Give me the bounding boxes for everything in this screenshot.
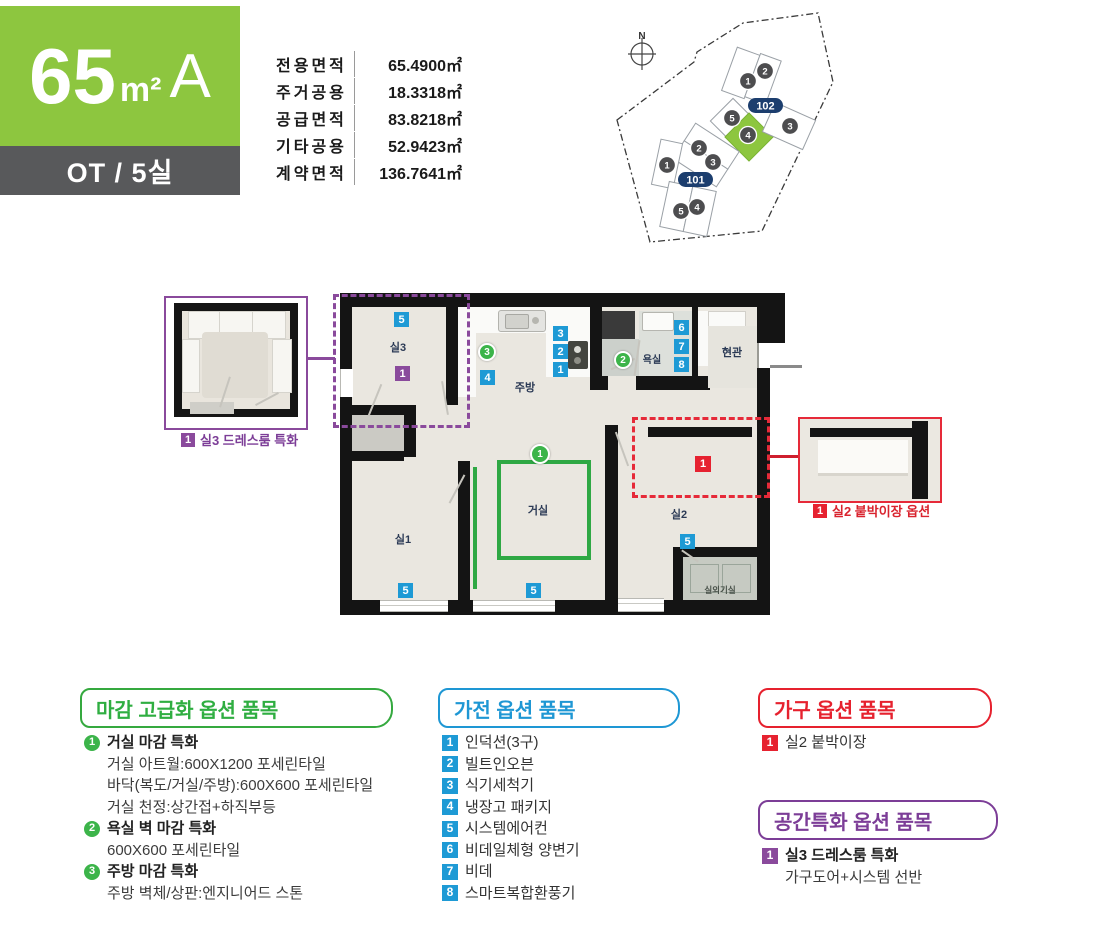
badge-bath-finish: 2 xyxy=(614,351,632,369)
item-name: 주방 마감 특화 xyxy=(107,861,198,883)
badge-room1-ac: 5 xyxy=(398,583,413,598)
item-number-badge: 3 xyxy=(442,778,458,794)
item-label: 스마트복합환풍기 xyxy=(465,883,575,905)
item-label: 시스템에어컨 xyxy=(465,818,548,840)
option-item: 1실3 드레스룸 특화 xyxy=(762,845,1012,867)
item-number-badge: 5 xyxy=(442,821,458,837)
furniture-options-title: 가구 옵션 품목 xyxy=(758,688,992,728)
area-table-row: 기타공용52.9423㎡ xyxy=(276,131,462,158)
badge-living-ac: 5 xyxy=(526,583,541,598)
ac-room-label: 실외기실 xyxy=(695,584,745,596)
unit-type-number: 65 xyxy=(29,37,116,115)
unit-plan-page: 65 m² A OT / 5실 전용면적65.4900㎡주거공용18.3318㎡… xyxy=(0,0,1098,948)
unit-type-box: 65 m² A xyxy=(0,6,240,146)
dressroom-zone-outline xyxy=(333,294,470,428)
kitchen-label: 주방 xyxy=(505,379,545,395)
item-label: 비데 xyxy=(465,861,493,883)
item-name: 거실 마감 특화 xyxy=(107,732,198,754)
area-table: 전용면적65.4900㎡주거공용18.3318㎡공급면적83.8218㎡기타공용… xyxy=(276,50,462,185)
sink-icon xyxy=(498,310,546,332)
option-item: 7비데 xyxy=(442,861,692,883)
area-table-row: 전용면적65.4900㎡ xyxy=(276,50,462,77)
item-label: 식기세척기 xyxy=(465,775,534,797)
dressroom-callout xyxy=(164,296,308,430)
area-table-row: 주거공용18.3318㎡ xyxy=(276,77,462,104)
bath-label: 욕실 xyxy=(635,351,669,366)
unit-subtitle: OT / 5실 xyxy=(0,146,240,195)
badge-bidet: 7 xyxy=(674,339,689,354)
option-item: 1인덕션(3구) xyxy=(442,732,692,754)
site-plan: N xyxy=(600,8,990,258)
living-label: 거실 xyxy=(518,502,558,518)
unit-marker: 5 xyxy=(678,207,684,218)
item-label: 빌트인오븐 xyxy=(465,754,534,776)
item-number-badge: 2 xyxy=(442,756,458,772)
area-value: 52.9423㎡ xyxy=(355,133,462,157)
unit-marker: 3 xyxy=(710,158,715,169)
option-item: 6비데일체형 양변기 xyxy=(442,840,692,862)
item-number-badge: 2 xyxy=(84,821,100,837)
entry-label: 현관 xyxy=(712,344,752,360)
dressroom-callout-caption: 1 실3 드레스룸 특화 xyxy=(181,430,298,449)
item-number-badge: 8 xyxy=(442,885,458,901)
badge-living-finish: 1 xyxy=(530,444,550,464)
unit-type-variant: A xyxy=(169,41,210,112)
item-number-badge: 1 xyxy=(84,735,100,751)
item-detail: 바닥(복도/거실/주방):600X600 포세린타일 xyxy=(107,775,414,797)
item-number-badge: 1 xyxy=(762,848,778,864)
option-item: 2빌트인오븐 xyxy=(442,754,692,776)
closet-caption-badge: 1 xyxy=(813,504,827,518)
option-item: 3식기세척기 xyxy=(442,775,692,797)
item-number-badge: 4 xyxy=(442,799,458,815)
item-number-badge: 6 xyxy=(442,842,458,858)
item-number-badge: 1 xyxy=(762,735,778,751)
option-item: 1실2 붙박이장 xyxy=(762,732,1012,754)
closet-zone-outline xyxy=(632,417,770,498)
item-label: 실2 붙박이장 xyxy=(785,732,867,754)
item-label: 비데일체형 양변기 xyxy=(465,840,580,862)
item-number-badge: 1 xyxy=(442,735,458,751)
cooktop-icon xyxy=(568,341,588,369)
area-label: 기타공용 xyxy=(276,133,354,157)
item-number-badge: 7 xyxy=(442,864,458,880)
item-detail: 600X600 포세린타일 xyxy=(107,840,414,862)
area-value: 18.3318㎡ xyxy=(355,79,462,103)
unit-marker: 2 xyxy=(762,67,767,78)
option-item: 1거실 마감 특화 xyxy=(84,732,414,754)
badge-vent: 8 xyxy=(674,357,689,372)
badge-fridge-package: 4 xyxy=(480,370,495,385)
item-detail: 거실 천정:상간접+하직부등 xyxy=(107,797,414,819)
finish-options-title: 마감 고급화 옵션 품목 xyxy=(80,688,393,728)
unit-marker: 5 xyxy=(729,114,735,125)
area-value: 65.4900㎡ xyxy=(355,52,462,76)
block-label-101: 101 xyxy=(686,175,704,187)
area-label: 전용면적 xyxy=(276,52,354,76)
room2-label: 실2 xyxy=(659,506,699,522)
dressroom-caption-text: 실3 드레스룸 특화 xyxy=(200,430,298,449)
badge-kitchen-finish: 3 xyxy=(478,343,496,361)
finish-options-list: 1거실 마감 특화거실 아트월:600X1200 포세린타일바닥(복도/거실/주… xyxy=(84,732,414,904)
badge-combo-toilet: 6 xyxy=(674,320,689,335)
badge-dishwasher: 3 xyxy=(553,326,568,341)
unit-marker-highlighted: 4 xyxy=(745,131,751,142)
area-value: 83.8218㎡ xyxy=(355,106,462,130)
block-label-102: 102 xyxy=(756,101,774,113)
furniture-options-list: 1실2 붙박이장 xyxy=(762,732,1012,754)
item-detail: 거실 아트월:600X1200 포세린타일 xyxy=(107,754,414,776)
compass-icon: N xyxy=(628,31,656,70)
item-name: 실3 드레스룸 특화 xyxy=(785,845,898,867)
appliance-options-list: 1인덕션(3구)2빌트인오븐3식기세척기4냉장고 패키지5시스템에어컨6비데일체… xyxy=(442,732,692,904)
dressroom-caption-badge: 1 xyxy=(181,433,195,447)
area-label: 계약면적 xyxy=(276,160,354,184)
unit-marker: 1 xyxy=(664,161,670,172)
badge-induction: 1 xyxy=(553,362,568,377)
closet-callout-caption: 1 실2 붙박이장 옵션 xyxy=(813,501,930,520)
unit-marker: 3 xyxy=(787,122,792,133)
option-item: 5시스템에어컨 xyxy=(442,818,692,840)
item-name: 욕실 벽 마감 특화 xyxy=(107,818,216,840)
item-label: 인덕션(3구) xyxy=(465,732,539,754)
living-artwall-line xyxy=(473,467,477,589)
fridge-space xyxy=(602,311,635,339)
unit-marker: 4 xyxy=(694,203,700,214)
item-detail: 가구도어+시스템 선반 xyxy=(785,867,1012,889)
space-options-title: 공간특화 옵션 품목 xyxy=(758,800,998,840)
bath-sink-icon xyxy=(642,312,674,331)
area-table-row: 계약면적136.7641㎡ xyxy=(276,158,462,185)
closet-caption-text: 실2 붙박이장 옵션 xyxy=(832,501,930,520)
area-label: 주거공용 xyxy=(276,79,354,103)
appliance-options-title: 가전 옵션 품목 xyxy=(438,688,680,728)
unit-type-sqm: m² xyxy=(120,71,162,110)
option-item: 2욕실 벽 마감 특화 xyxy=(84,818,414,840)
room1-label: 실1 xyxy=(383,531,423,547)
badge-room2-ac: 5 xyxy=(680,534,695,549)
area-label: 공급면적 xyxy=(276,106,354,130)
item-detail: 주방 벽체/상판:엔지니어드 스톤 xyxy=(107,883,414,905)
space-options-list: 1실3 드레스룸 특화가구도어+시스템 선반 xyxy=(762,845,1012,888)
unit-marker: 2 xyxy=(696,144,701,155)
closet-callout xyxy=(798,417,942,503)
item-number-badge: 3 xyxy=(84,864,100,880)
option-item: 4냉장고 패키지 xyxy=(442,797,692,819)
option-item: 8스마트복합환풍기 xyxy=(442,883,692,905)
badge-oven: 2 xyxy=(553,344,568,359)
item-label: 냉장고 패키지 xyxy=(465,797,552,819)
area-table-row: 공급면적83.8218㎡ xyxy=(276,104,462,131)
option-item: 3주방 마감 특화 xyxy=(84,861,414,883)
unit-marker: 1 xyxy=(745,77,751,88)
area-value: 136.7641㎡ xyxy=(355,160,462,184)
